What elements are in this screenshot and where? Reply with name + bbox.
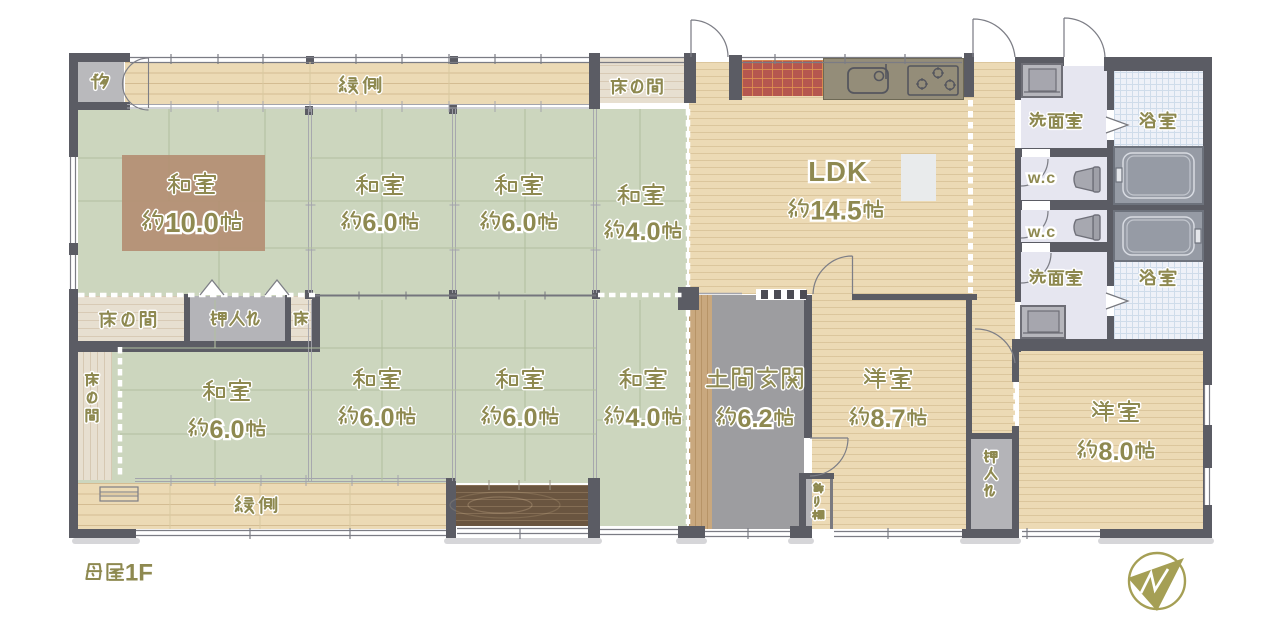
- svg-text:6.2: 6.2: [737, 405, 772, 433]
- svg-text:6.0: 6.0: [209, 416, 244, 444]
- svg-text:8.0: 8.0: [1098, 438, 1133, 466]
- svg-text:w.c: w.c: [1027, 169, 1056, 187]
- svg-text:4.0: 4.0: [625, 218, 660, 246]
- svg-text:6.0: 6.0: [501, 209, 536, 237]
- svg-text:6.0: 6.0: [359, 404, 394, 432]
- svg-text:6.0: 6.0: [362, 209, 397, 237]
- svg-text:8.7: 8.7: [870, 405, 905, 433]
- svg-text:w.c: w.c: [1027, 223, 1056, 241]
- svg-text:4.0: 4.0: [625, 404, 660, 432]
- svg-text:LDK: LDK: [808, 156, 868, 187]
- svg-text:6.0: 6.0: [502, 404, 537, 432]
- svg-text:14.5: 14.5: [810, 196, 861, 226]
- svg-text:10.0: 10.0: [165, 207, 219, 238]
- svg-text:1F: 1F: [125, 560, 153, 587]
